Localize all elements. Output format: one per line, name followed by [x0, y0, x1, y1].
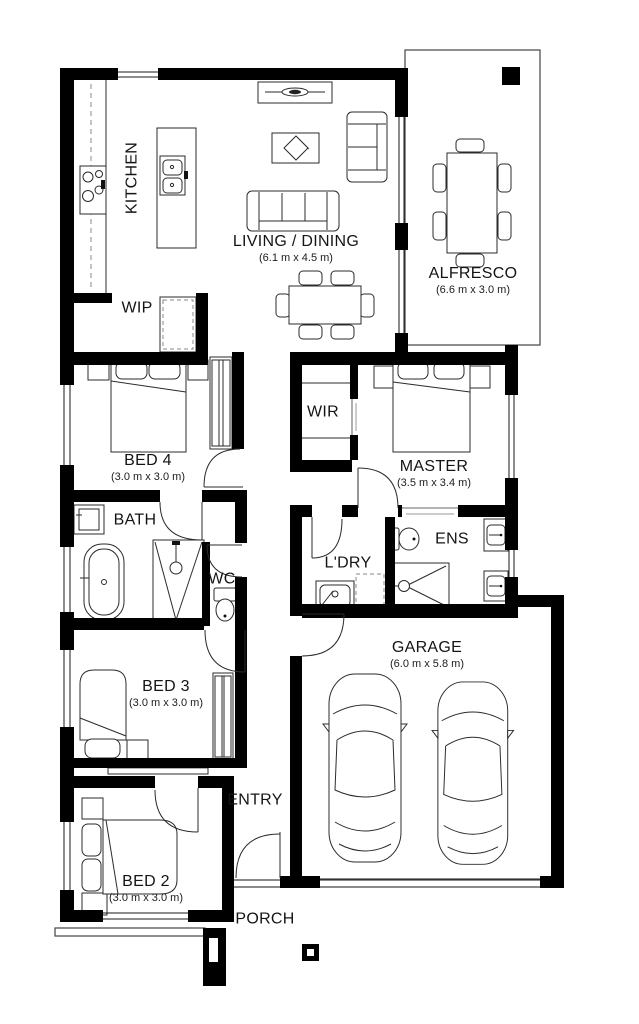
outdoor-chair-icon: [433, 164, 446, 192]
room-name: BATH: [114, 513, 157, 530]
outdoor-chair-icon: [433, 212, 446, 240]
window: [64, 650, 70, 727]
toilet-icon: [214, 588, 236, 621]
outdoor-chair-icon: [498, 164, 511, 192]
room-name: BED 4: [111, 453, 185, 470]
window: [509, 550, 514, 577]
pillow: [82, 859, 101, 891]
floorplan-drawing: [0, 0, 639, 1024]
bedside-table: [470, 366, 490, 388]
vanity-icon: [74, 505, 104, 534]
shower-icon: [386, 563, 449, 609]
room-label-garage: GARAGE (6.0 m x 5.8 m): [390, 640, 464, 670]
room-name: WIR: [307, 405, 339, 422]
vanity-icon: [484, 571, 508, 601]
room-name: ALFRESCO: [429, 266, 518, 283]
room-name: BED 2: [109, 874, 183, 891]
outdoor-table-icon: [447, 153, 497, 253]
room-label-living-dining: LIVING / DINING (6.1 m x 4.5 m): [233, 234, 359, 264]
room-label-master: MASTER (3.5 m x 3.4 m): [397, 459, 471, 489]
master-furniture: [374, 360, 490, 452]
room-name: LIVING / DINING: [233, 234, 359, 251]
window: [118, 72, 158, 77]
room-label-ens: ENS: [435, 532, 469, 549]
step-outline: [55, 928, 205, 936]
window: [64, 822, 70, 890]
outdoor-chair-icon: [498, 212, 511, 240]
sofa-2-seat-icon: [347, 112, 387, 182]
room-label-porch: PORCH: [235, 912, 294, 929]
bath-door: [160, 502, 202, 540]
alfresco-furniture: [433, 139, 511, 267]
master-door: [358, 468, 398, 508]
outdoor-chair-icon: [456, 139, 484, 152]
shower-icon: [153, 540, 204, 626]
wardrobe-icon: [213, 673, 233, 760]
room-dims: (6.6 m x 3.0 m): [429, 285, 518, 297]
bedside-table: [127, 740, 148, 760]
entry-door: [236, 832, 280, 878]
room-label-bed4: BED 4 (3.0 m x 3.0 m): [111, 453, 185, 483]
island-bench-icon: [157, 128, 196, 248]
room-label-bed3: BED 3 (3.0 m x 3.0 m): [129, 679, 203, 709]
pantry-cupboard-icon: [160, 297, 196, 352]
single-bed-icon: [80, 670, 126, 740]
room-name: MASTER: [397, 459, 471, 476]
room-dims: (3.0 m x 3.0 m): [109, 893, 183, 905]
room-name: GARAGE: [390, 640, 464, 657]
room-name: ENTRY: [227, 793, 282, 810]
room-label-entry: ENTRY: [227, 793, 282, 810]
pillow: [82, 824, 101, 856]
garage-cars: [323, 674, 514, 864]
room-name: WIP: [121, 301, 152, 318]
room-label-bath: BATH: [114, 513, 157, 530]
room-name: BED 3: [129, 679, 203, 696]
bedside-table: [374, 366, 393, 388]
room-name: ENS: [435, 532, 469, 549]
room-name: KITCHEN: [125, 142, 142, 214]
room-label-bed2: BED 2 (3.0 m x 3.0 m): [109, 874, 183, 904]
window: [509, 395, 514, 478]
window: [399, 117, 404, 223]
room-label-wir: WIR: [307, 405, 339, 422]
room-label-wc: WC: [208, 572, 235, 589]
ldry-door: [312, 517, 342, 558]
sofa-3-seat-icon: [247, 191, 339, 231]
wardrobe-icon: [210, 357, 232, 449]
room-dims: (3.0 m x 3.0 m): [129, 698, 203, 710]
room-dims: (6.0 m x 5.8 m): [390, 659, 464, 671]
bed4-furniture: [88, 357, 232, 452]
cooktop-icon: [80, 166, 106, 214]
window: [64, 385, 70, 465]
room-name: PORCH: [235, 912, 294, 929]
coffee-table-icon: [272, 133, 319, 163]
sliding-door: [399, 250, 404, 333]
garage-internal-door: [302, 614, 344, 656]
window: [64, 547, 70, 612]
window: [103, 913, 188, 919]
room-label-ldry: L'DRY: [325, 556, 372, 573]
room-label-alfresco: ALFRESCO (6.6 m x 3.0 m): [429, 266, 518, 296]
room-label-kitchen: KITCHEN: [125, 142, 142, 214]
tv-unit-icon: [258, 82, 332, 103]
bathtub-icon: [80, 544, 124, 620]
vanity-icon: [484, 519, 508, 551]
room-name: L'DRY: [325, 556, 372, 573]
car-icon: [323, 674, 407, 862]
bedside-table: [82, 798, 103, 819]
room-label-wip: WIP: [121, 301, 152, 318]
dining-setting-icon: [276, 271, 374, 339]
living-furniture: [247, 82, 387, 339]
bed4-door: [204, 449, 243, 487]
car-icon: [432, 682, 513, 864]
floor-plan-page: KITCHEN LIVING / DINING (6.1 m x 4.5 m) …: [0, 0, 639, 1024]
room-dims: (6.1 m x 4.5 m): [233, 253, 359, 265]
alfresco-column: [502, 67, 520, 85]
room-dims: (3.5 m x 3.4 m): [397, 478, 471, 490]
room-name: WC: [208, 572, 235, 589]
washing-machine-space: [356, 574, 384, 609]
room-dims: (3.0 m x 3.0 m): [111, 472, 185, 484]
pillow: [85, 739, 120, 758]
